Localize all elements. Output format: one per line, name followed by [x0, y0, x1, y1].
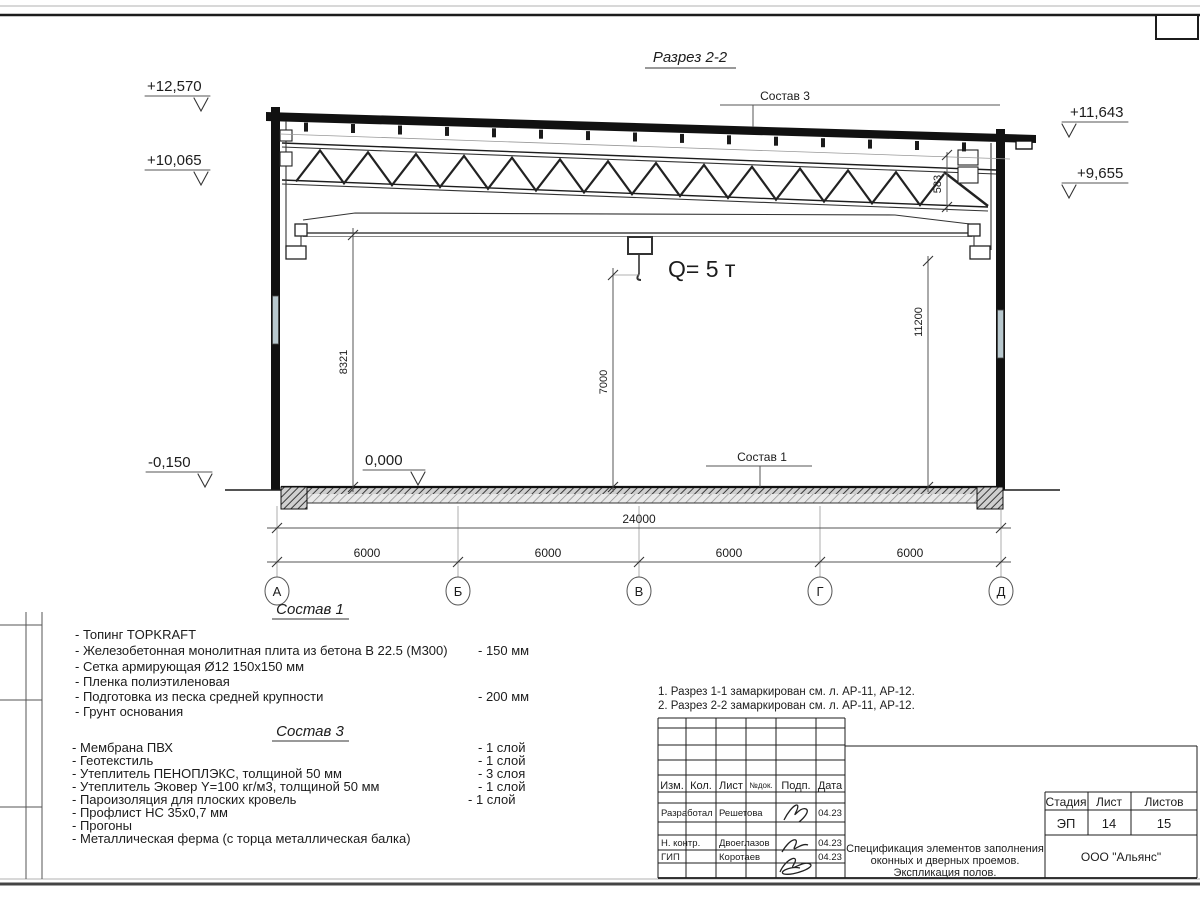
sostav3-label: Состав 3 [760, 89, 810, 103]
stamp-date: 04.23 [818, 852, 842, 863]
runway-plate-right [970, 246, 990, 259]
column-right [996, 129, 1005, 490]
composition3-list: Состав 3 - Мембрана ПВХ - 1 слой - Геоте… [72, 723, 526, 846]
level-mark-ground: -0,150 [146, 454, 212, 487]
hoist-trolley [628, 237, 652, 254]
stamp-col-podp: Подп. [781, 780, 810, 792]
sheet-zone-box [1156, 15, 1198, 39]
column-right-inset [998, 310, 1004, 358]
stamp-role: Н. контр. [661, 838, 700, 849]
dim-11200: 11200 [913, 256, 933, 492]
level-mark-left-mid: +10,065 [145, 152, 210, 185]
purlin-tick [727, 135, 731, 144]
stamp-doc-title-line1: Спецификация элементов заполнения [846, 843, 1044, 855]
bottom-dimensions: 24000 6000 6000 6000 6000 [267, 506, 1011, 577]
level-symbol-icon [198, 474, 212, 487]
section-drawing-sheet: Разрез 2-2 [0, 0, 1200, 900]
signatures [780, 805, 811, 874]
stamp-sheets-label: Листов [1145, 795, 1184, 809]
purlin-tick [351, 124, 355, 133]
stamp-role: Разработал [661, 808, 713, 819]
stamp-sheets-value: 15 [1157, 816, 1171, 831]
list-item-value: - 200 мм [478, 689, 529, 704]
note-2: 2. Разрез 2-2 замаркирован см. л. АР-11,… [658, 700, 915, 712]
stamp-col-data: Дата [818, 780, 843, 792]
level-symbol-icon [1062, 185, 1076, 198]
axis-bubble-d: Д [997, 584, 1006, 599]
list-item: - Сетка армирующая Ø12 150х150 мм [75, 659, 304, 674]
dim-7000: 7000 [598, 268, 639, 492]
level-symbol-icon [194, 98, 208, 111]
crane-hoist: Q= 5 т [628, 237, 736, 282]
list-item: - Подготовка из песка средней крупности [75, 689, 323, 704]
vertical-dimensions: 8321 7000 11200 583 [338, 150, 952, 492]
list-item: - Металлическая ферма (с торца металличе… [72, 831, 411, 846]
dim-bay: 6000 [354, 546, 381, 560]
stamp-sheet-value: 14 [1102, 816, 1116, 831]
level-symbol-icon [1062, 124, 1076, 137]
dim-bay: 6000 [535, 546, 562, 560]
axis-bubble-g: Г [816, 584, 823, 599]
title-block: Изм. Кол. Лист №док. Подп. Дата Разработ… [658, 718, 1197, 879]
crane-capacity-label: Q= 5 т [668, 256, 736, 282]
stamp-col-izm: Изм. [660, 780, 684, 792]
list-item: - Топинг TOPKRAFT [75, 627, 196, 642]
stamp-doc-title-line3: Экспликация полов. [894, 867, 997, 879]
runway-bracket-left [295, 224, 307, 236]
grid-axes: А Б В Г Д [265, 577, 1013, 605]
dim-bay: 6000 [716, 546, 743, 560]
stamp-company: ООО "Альянс" [1081, 850, 1161, 864]
signature-razrabotal [784, 805, 807, 822]
truss-bearing-left [280, 130, 292, 141]
purlin-tick [492, 128, 496, 137]
dim-value: 11200 [913, 307, 925, 337]
purlin-tick [586, 131, 590, 140]
purlin-tick [539, 130, 543, 139]
level-value: -0,150 [148, 454, 191, 471]
runway-bracket-right [968, 224, 980, 236]
level-symbol-icon [411, 472, 425, 485]
floor-edge-left [281, 487, 307, 509]
level-mark-left-top: +12,570 [145, 78, 210, 111]
purlin-tick [774, 137, 778, 146]
purlin-tick [821, 138, 825, 147]
dim-583: 583 [932, 150, 952, 212]
composition3-heading: Состав 3 [276, 723, 344, 740]
axis-bubble-v: В [635, 584, 644, 599]
stamp-date: 04.23 [818, 808, 842, 819]
purlin-tick [868, 140, 872, 149]
list-item-value: - 1 слой [468, 792, 516, 807]
building-section: Q= 5 т [225, 107, 1060, 509]
stamp-col-list: Лист [719, 780, 743, 792]
dim-value: 583 [932, 175, 944, 193]
level-value: 0,000 [365, 452, 403, 469]
list-item: - Грунт основания [75, 704, 183, 719]
dim-total: 24000 [622, 512, 656, 526]
purlin-tick [680, 134, 684, 143]
purlin-tick [398, 126, 402, 135]
note-1: 1. Разрез 1-1 замаркирован см. л. АР-11,… [658, 686, 915, 698]
stamp-name: Двоеглазов [719, 838, 770, 849]
purlin-tick [445, 127, 449, 136]
roof-band [266, 112, 1036, 143]
level-symbol-icon [194, 172, 208, 185]
sostav1-label: Состав 1 [737, 450, 787, 464]
level-value: +9,655 [1077, 165, 1123, 182]
axis-bubble-a: А [273, 584, 282, 599]
truss-bearing-right2 [958, 167, 978, 183]
stamp-col-ndok: №док. [749, 781, 772, 790]
stamp-stage-label: Стадия [1046, 795, 1087, 809]
sostav3-leader: Состав 3 [720, 89, 1000, 127]
level-mark-right-top: +11,643 [1062, 104, 1128, 137]
list-item: - Пленка полиэтиленовая [75, 674, 230, 689]
stamp-date: 04.23 [818, 838, 842, 849]
left-margin-stamps [0, 612, 42, 879]
column-left-inset [273, 296, 279, 344]
stamp-col-kol: Кол. [690, 780, 712, 792]
signature-gip [780, 858, 811, 874]
dim-bay: 6000 [897, 546, 924, 560]
list-item: - Железобетонная монолитная плита из бет… [75, 643, 448, 658]
roof-truss [280, 121, 996, 250]
notes: 1. Разрез 1-1 замаркирован см. л. АР-11,… [658, 686, 915, 712]
level-value: +10,065 [147, 152, 202, 169]
composition1-list: Состав 1 - Топинг TOPKRAFT - Железобетон… [75, 601, 529, 719]
sostav1-leader: Состав 1 [706, 450, 812, 487]
stamp-sheet-label: Лист [1096, 795, 1123, 809]
stamp-role: ГИП [661, 852, 680, 863]
level-value: +12,570 [147, 78, 202, 95]
stamp-stage-value: ЭП [1057, 816, 1076, 831]
stamp-name: Коротаев [719, 852, 760, 863]
axis-bubble-b: Б [454, 584, 463, 599]
drawing-title: Разрез 2-2 [653, 49, 728, 66]
drawing-title-block: Разрез 2-2 [645, 49, 736, 68]
runway-plate-left [286, 246, 306, 259]
dim-value: 7000 [598, 370, 610, 394]
truss-bearing-left2 [280, 152, 292, 166]
purlin-tick [915, 141, 919, 150]
stamp-doc-title-line2: оконных и дверных проемов. [871, 855, 1020, 867]
dim-8321: 8321 [338, 228, 358, 492]
list-item-value: - 150 мм [478, 643, 529, 658]
roof-edge-detail [1016, 141, 1032, 149]
level-value: +11,643 [1070, 104, 1124, 121]
purlin-tick [633, 133, 637, 142]
level-mark-right-mid: +9,655 [1062, 165, 1128, 198]
purlin-tick [304, 123, 308, 132]
floor-edge-right [977, 487, 1003, 509]
purlin-tick [962, 142, 966, 151]
stamp-name: Решетова [719, 808, 763, 819]
dim-value: 8321 [338, 350, 350, 374]
level-mark-floor-zero: 0,000 [363, 452, 425, 485]
composition1-heading: Состав 1 [276, 601, 344, 618]
